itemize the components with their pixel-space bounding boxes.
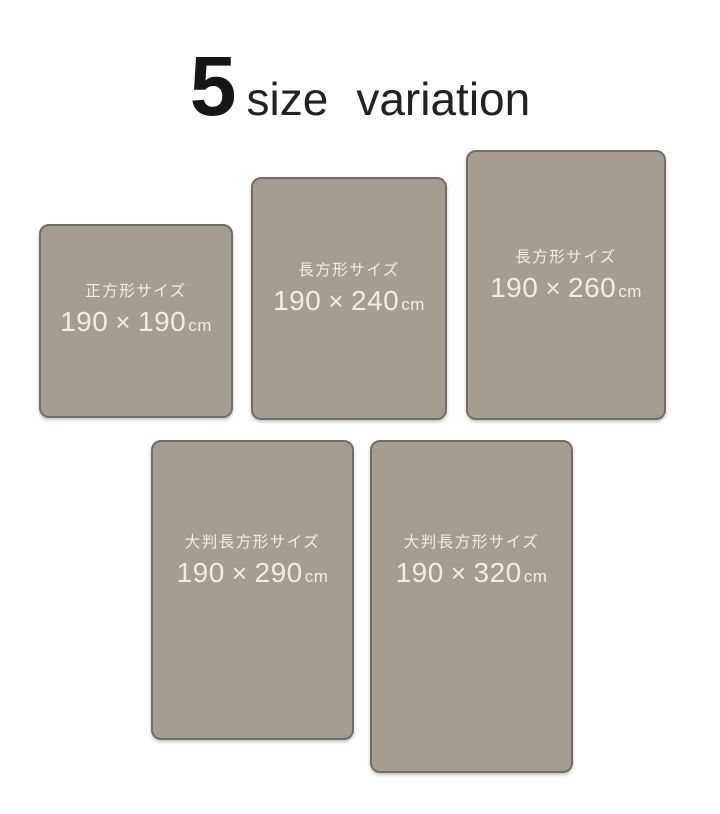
size-card-dimensions: 190×240cm (253, 286, 445, 317)
size-card-190x290: 大判長方形サイズ 190×290cm (151, 440, 354, 740)
size-card-190x320: 大判長方形サイズ 190×320cm (370, 440, 573, 773)
size-card-label: 正方形サイズ (41, 282, 231, 301)
dimension-width: 190 (60, 306, 108, 337)
dimension-unit: cm (305, 567, 329, 586)
multiply-sign: × (232, 558, 248, 588)
size-card-label: 大判長方形サイズ (153, 533, 352, 552)
size-card-text: 大判長方形サイズ 190×290cm (153, 533, 352, 589)
multiply-sign: × (451, 558, 467, 588)
multiply-sign: × (115, 307, 131, 337)
size-card-text: 長方形サイズ 190×260cm (468, 248, 664, 304)
dimension-height: 190 (138, 306, 186, 337)
dimension-unit: cm (618, 282, 642, 301)
size-card-label: 大判長方形サイズ (372, 533, 571, 552)
size-card-dimensions: 190×190cm (41, 307, 231, 338)
dimension-width: 190 (177, 557, 225, 588)
size-card-text: 長方形サイズ 190×240cm (253, 261, 445, 317)
title-size-count: 5 (190, 44, 235, 128)
size-variation-infographic: 5 size variation 正方形サイズ 190×190cm 長方形サイズ… (0, 0, 720, 814)
dimension-width: 190 (273, 285, 321, 316)
title-word-variation: variation (356, 76, 530, 122)
page-title: 5 size variation (0, 0, 720, 128)
dimension-width: 190 (396, 557, 444, 588)
size-card-190x240: 長方形サイズ 190×240cm (251, 177, 447, 420)
size-card-dimensions: 190×290cm (153, 558, 352, 589)
dimension-width: 190 (490, 272, 538, 303)
dimension-unit: cm (524, 567, 548, 586)
size-card-label: 長方形サイズ (253, 261, 445, 280)
multiply-sign: × (545, 273, 561, 303)
dimension-height: 290 (255, 557, 303, 588)
size-card-text: 正方形サイズ 190×190cm (41, 282, 231, 338)
size-card-dimensions: 190×320cm (372, 558, 571, 589)
size-card-label: 長方形サイズ (468, 248, 664, 267)
title-word-size: size (247, 76, 329, 122)
size-card-190x190: 正方形サイズ 190×190cm (39, 224, 233, 418)
dimension-height: 240 (351, 285, 399, 316)
dimension-unit: cm (401, 295, 425, 314)
size-card-dimensions: 190×260cm (468, 273, 664, 304)
multiply-sign: × (328, 286, 344, 316)
size-card-190x260: 長方形サイズ 190×260cm (466, 150, 666, 420)
dimension-height: 260 (568, 272, 616, 303)
size-card-text: 大判長方形サイズ 190×320cm (372, 533, 571, 589)
dimension-height: 320 (474, 557, 522, 588)
dimension-unit: cm (188, 316, 212, 335)
